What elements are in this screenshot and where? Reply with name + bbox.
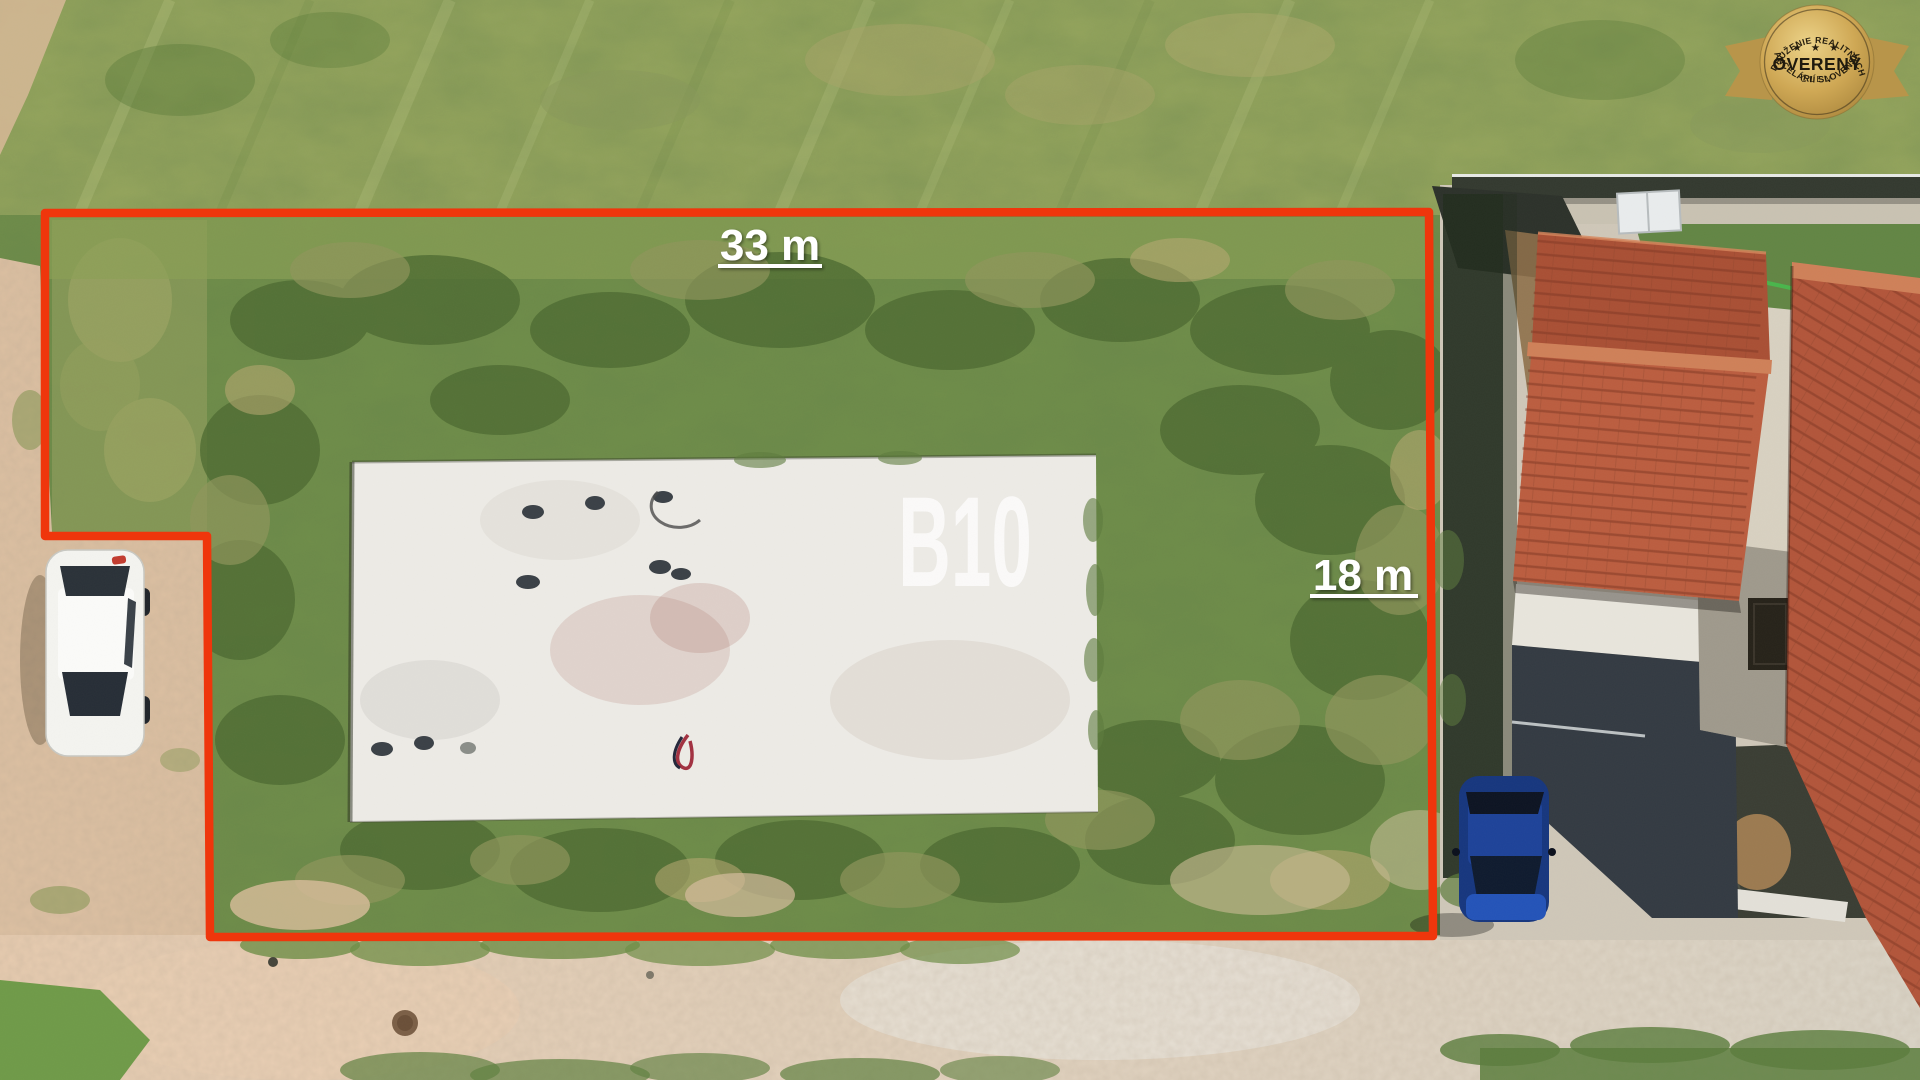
badge-stars: ★ ★ ★	[1792, 42, 1841, 54]
badge-title: OVERENÝ	[1772, 53, 1861, 74]
depth-label: 18 m	[1313, 551, 1413, 600]
aerial-photo: B10	[0, 0, 1920, 1080]
photo-grain	[0, 0, 1920, 1080]
width-underline	[718, 264, 822, 268]
badge-subtitle: ČLEN	[1801, 74, 1834, 84]
depth-underline	[1310, 594, 1418, 598]
width-label: 33 m	[720, 221, 820, 270]
depth-measurement: 18 m	[1310, 551, 1418, 600]
width-measurement: 33 m	[718, 221, 822, 270]
